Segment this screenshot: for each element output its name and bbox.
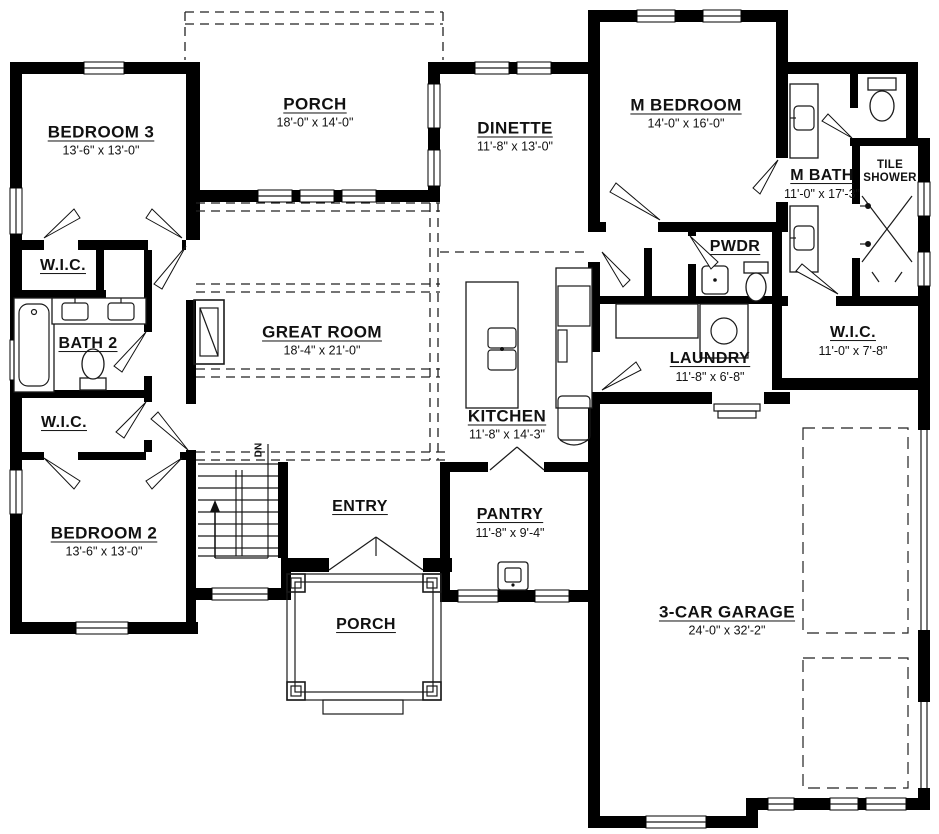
garage-doors <box>803 428 930 788</box>
stairs-dn-label: DN <box>254 443 265 457</box>
powder-sink-icon <box>702 266 728 294</box>
room-label-dinette: DINETTE 11'-8" x 13'-0" <box>477 118 553 153</box>
room-label-porch-bottom: PORCH <box>336 616 396 634</box>
room-label-bath2: BATH 2 <box>59 335 118 353</box>
room-label-kitchen: KITCHEN 11'-8" x 14'-3" <box>468 406 546 441</box>
room-label-pwdr: PWDR <box>710 238 760 256</box>
mbath-vanity-bottom-icon <box>790 206 818 272</box>
overhead-door-track-2 <box>803 658 908 788</box>
room-label-entry: ENTRY <box>332 498 388 516</box>
bath2-toilet-icon <box>80 349 106 390</box>
bathtub-icon <box>14 298 54 392</box>
room-label-laundry: LAUNDRY 11'-8" x 6'-8" <box>670 350 750 384</box>
porch-step <box>323 700 403 714</box>
tile-shower-icon <box>860 196 912 282</box>
room-label-porch-top: PORCH 18'-0" x 14'-0" <box>277 94 354 129</box>
room-label-wic-bedroom2: W.I.C. <box>41 414 87 432</box>
dashed-lines <box>185 12 588 460</box>
kitchen-counter-icon <box>556 268 592 445</box>
room-label-pantry: PANTRY 11'-8" x 9'-4" <box>475 506 544 540</box>
pantry-sink-icon <box>498 562 528 590</box>
bath2-vanity-icon <box>52 298 146 324</box>
front-porch <box>287 574 441 714</box>
room-label-m-bath: M BATH 11'-0" x 17'-3" <box>784 167 860 201</box>
room-label-great-room: GREAT ROOM 18'-4" x 21'-0" <box>262 322 382 357</box>
stairs <box>198 444 278 558</box>
room-label-wic-bedroom3: W.I.C. <box>40 257 86 275</box>
room-label-bedroom2: BEDROOM 2 13'-6" x 13'-0" <box>51 523 158 558</box>
stairs-arrow <box>210 500 220 512</box>
room-label-bedroom3: BEDROOM 3 13'-6" x 13'-0" <box>48 122 155 157</box>
overhead-door-track-1 <box>803 428 908 633</box>
powder-toilet-icon <box>744 262 768 301</box>
kitchen-island-icon <box>466 282 518 408</box>
floor-plan: BEDROOM 3 13'-6" x 13'-0" PORCH 18'-0" x… <box>0 0 939 834</box>
room-label-garage: 3-CAR GARAGE 24'-0" x 32'-2" <box>659 602 795 637</box>
room-label-wic-master: W.I.C. 11'-0" x 7'-8" <box>818 324 887 358</box>
garage-steps <box>714 404 760 418</box>
mbath-vanity-top-icon <box>790 84 818 158</box>
room-label-m-bedroom: M BEDROOM 14'-0" x 16'-0" <box>630 95 741 130</box>
fireplace <box>194 300 224 364</box>
room-label-tile-shower: TILE SHOWER <box>857 159 923 185</box>
toilet-room-toilet-icon <box>868 78 896 121</box>
